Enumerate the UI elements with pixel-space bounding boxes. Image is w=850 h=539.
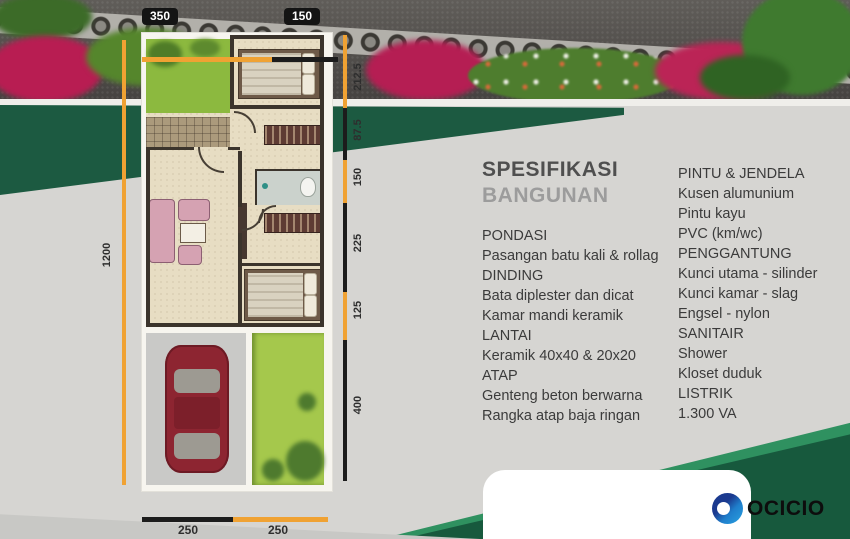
dim-right-bar [343, 203, 347, 292]
shower-drain-icon [262, 183, 268, 189]
wall [230, 35, 324, 39]
spec-line: 1.300 VA [678, 404, 817, 424]
spec-line: Pintu kayu [678, 204, 817, 224]
dim-right-bar [343, 160, 347, 203]
logo-swirl-hole [717, 502, 730, 515]
street-photo-strip [0, 0, 850, 102]
dim-label-400: 400 [351, 382, 365, 428]
wall [238, 233, 242, 325]
spec-line: Keramik 40x40 & 20x20 [482, 346, 659, 366]
wall [238, 151, 242, 207]
spec-line: PENGGANTUNG [678, 244, 817, 264]
dim-label-150: 150 [351, 154, 365, 200]
car-roof [174, 397, 220, 429]
dim-bottom-250-bar [233, 517, 328, 522]
wall [146, 323, 324, 327]
sofa [178, 199, 210, 221]
specs-subtitle: BANGUNAN [482, 184, 609, 208]
dim-label-bottom-250-right: 250 [268, 523, 288, 537]
spec-line: ATAP [482, 366, 659, 386]
floor-plan [142, 33, 332, 491]
specs-title: SPESIFIKASI [482, 158, 618, 182]
brochure-page: 350 150 212.5 87.5 150 225 125 400 1200 … [0, 0, 850, 539]
dim-bottom-250-bar [142, 517, 233, 522]
footer-card [483, 470, 751, 539]
coffee-table [180, 223, 206, 243]
dim-label-87-5: 87.5 [351, 107, 365, 153]
spec-line: Rangka atap baja ringan [482, 406, 659, 426]
dim-label-top-350: 350 [142, 8, 178, 25]
spec-line: PVC (km/wc) [678, 224, 817, 244]
spec-line: Kunci utama - silinder [678, 264, 817, 284]
flowerbed-white-orange [468, 48, 683, 102]
carport [146, 333, 246, 485]
spec-line: Bata diplester dan dicat [482, 286, 659, 306]
bougainvillea-mid [366, 40, 486, 100]
spec-line: Kunci kamar - slag [678, 284, 817, 304]
bush [298, 393, 316, 411]
spec-line: Kamar mandi keramik [482, 306, 659, 326]
wall [230, 105, 324, 109]
specs-column-left: PONDASIPasangan batu kali & rollagDINDIN… [482, 226, 659, 426]
spec-line: Kloset duduk [678, 364, 817, 384]
side-garden [252, 333, 324, 485]
wardrobe-bedroom1 [264, 125, 324, 145]
bush [148, 41, 182, 67]
toilet-icon [300, 177, 316, 197]
spec-line: SANITAIR [678, 324, 817, 344]
wall [150, 147, 194, 150]
bed-bedroom2 [244, 269, 322, 321]
mattress [248, 273, 303, 317]
wall [146, 147, 150, 327]
car-windshield [174, 369, 220, 393]
dim-right-bar [343, 35, 347, 108]
front-garden [146, 39, 230, 113]
dim-top-150-bar [272, 57, 338, 62]
spec-line: PONDASI [482, 226, 659, 246]
car-rear-window [174, 433, 220, 459]
spec-line: Pasangan batu kali & rollag [482, 246, 659, 266]
specs-column-right: PINTU & JENDELAKusen alumuniumPintu kayu… [678, 164, 817, 424]
palm-fronds [700, 55, 790, 100]
spec-line: DINDING [482, 266, 659, 286]
pillow [302, 74, 315, 95]
spec-line: LISTRIK [678, 384, 817, 404]
dim-label-125: 125 [351, 287, 365, 333]
spec-line: LANTAI [482, 326, 659, 346]
dim-label-bottom-250-left: 250 [178, 523, 198, 537]
ocicio-logo-icon [712, 493, 743, 524]
spec-line: PINTU & JENDELA [678, 164, 817, 184]
dim-right-bar [343, 108, 347, 160]
armchair [178, 245, 202, 265]
wall [228, 147, 240, 150]
pillow [304, 295, 317, 317]
dim-label-1200: 1200 [100, 232, 114, 278]
dim-left-bar [122, 40, 126, 485]
spec-line: Engsel - nylon [678, 304, 817, 324]
spec-line: Kusen alumunium [678, 184, 817, 204]
pillow [304, 273, 317, 295]
brand-logo: OCICIO [712, 493, 825, 524]
photo-bottom-edge [0, 99, 850, 106]
dim-label-225: 225 [351, 220, 365, 266]
bush [262, 459, 284, 481]
wall [242, 263, 324, 266]
patio-paving [146, 117, 230, 147]
dim-right-bar [343, 292, 347, 340]
dim-label-212-5: 212.5 [351, 54, 365, 100]
sofa [149, 199, 175, 263]
wall [230, 35, 234, 109]
dim-top-350-bar [142, 57, 272, 62]
bush [190, 39, 220, 57]
dim-right-bar [343, 340, 347, 481]
wall [320, 35, 324, 327]
spec-line: Shower [678, 344, 817, 364]
brand-name: OCICIO [747, 497, 825, 521]
bush [286, 441, 324, 481]
car-top-view [165, 345, 229, 473]
dim-label-top-150: 150 [284, 8, 320, 25]
spec-line: Genteng beton berwarna [482, 386, 659, 406]
